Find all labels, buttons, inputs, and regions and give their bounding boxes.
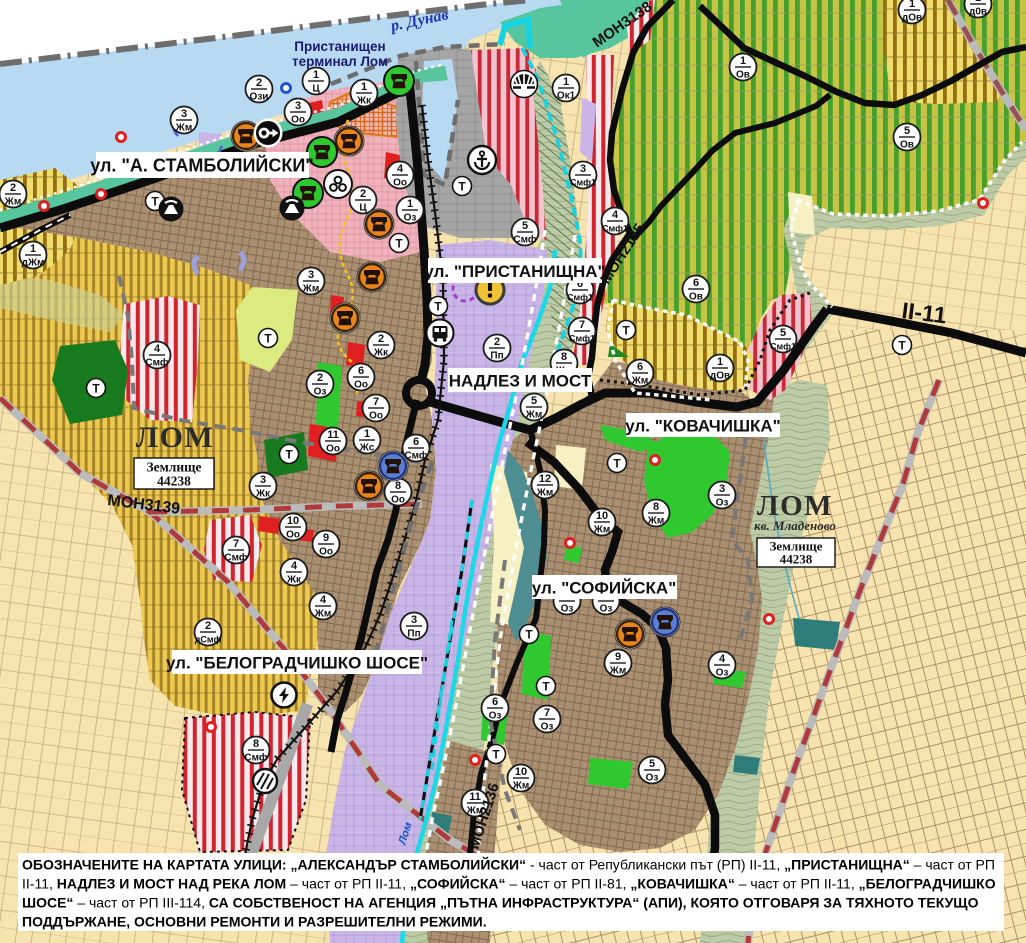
svg-text:Оо: Оо: [319, 547, 333, 558]
svg-text:44238: 44238: [780, 552, 813, 567]
svg-text:кв. Младеново: кв. Младеново: [754, 518, 836, 533]
svg-text:Смф: Смф: [224, 552, 247, 564]
svg-text:Смф1: Смф1: [567, 293, 593, 303]
svg-text:Оз: Оз: [541, 722, 554, 733]
svg-text:Пп: Пп: [490, 351, 503, 362]
svg-text:1: 1: [313, 69, 319, 81]
svg-text:1: 1: [407, 198, 413, 210]
svg-text:ул. "КОВАЧИШКА": ул. "КОВАЧИШКА": [625, 417, 781, 436]
svg-text:Жм: Жм: [525, 410, 542, 421]
svg-text:Смф: Смф: [404, 450, 427, 462]
svg-text:Оз: Оз: [716, 498, 729, 509]
svg-text:Смф: Смф: [244, 752, 267, 764]
svg-text:Смф: Смф: [145, 357, 168, 369]
svg-text:4: 4: [612, 209, 619, 221]
svg-text:Ц: Ц: [312, 84, 320, 95]
svg-text:3: 3: [719, 483, 725, 495]
svg-text:Жм: Жм: [175, 123, 192, 134]
svg-text:Оо: Оо: [354, 380, 368, 391]
svg-text:терминал Лом: терминал Лом: [292, 54, 388, 69]
svg-text:Смф1: Смф1: [569, 334, 595, 344]
svg-text:3: 3: [580, 163, 586, 175]
svg-text:10: 10: [287, 515, 299, 527]
svg-text:ЛОМ: ЛОМ: [136, 421, 215, 454]
svg-text:1: 1: [975, 0, 981, 4]
svg-text:8: 8: [253, 738, 259, 750]
svg-text:9: 9: [323, 532, 329, 544]
svg-text:Жк: Жк: [356, 96, 372, 107]
svg-text:7: 7: [233, 538, 239, 550]
svg-text:44238: 44238: [157, 474, 191, 489]
svg-text:7: 7: [373, 396, 379, 408]
svg-text:8: 8: [653, 501, 659, 513]
svg-text:Ок1: Ок1: [557, 91, 576, 102]
svg-text:2: 2: [494, 336, 500, 348]
svg-text:Т: Т: [622, 324, 630, 338]
svg-text:Смф: Смф: [513, 234, 536, 246]
svg-text:3: 3: [308, 269, 314, 281]
svg-text:Жм: Жм: [609, 666, 626, 677]
svg-text:дЖм: дЖм: [22, 258, 45, 269]
svg-text:2: 2: [317, 372, 323, 384]
svg-text:Оз: Оз: [314, 387, 327, 398]
svg-text:Ов: Ов: [689, 292, 703, 303]
svg-text:Оз: Оз: [489, 711, 502, 722]
svg-text:Оз: Оз: [404, 213, 417, 224]
svg-text:Жм: Жм: [647, 516, 664, 527]
svg-text:Т: Т: [613, 457, 621, 471]
svg-text:Жк: Жк: [373, 348, 389, 359]
svg-text:Оо: Оо: [393, 178, 407, 189]
svg-text:Смф1: Смф1: [602, 224, 628, 234]
svg-text:6: 6: [693, 277, 699, 289]
svg-text:Жм: Жм: [631, 376, 648, 387]
svg-text:Оз: Оз: [600, 604, 613, 615]
svg-text:Оо: Оо: [286, 530, 300, 541]
svg-text:ул. "А. СТАМБОЛИЙСКИ": ул. "А. СТАМБОЛИЙСКИ": [90, 155, 314, 176]
svg-text:Жк: Жк: [255, 489, 271, 500]
svg-text:Оо: Оо: [391, 495, 405, 506]
svg-text:Ов: Ов: [900, 140, 914, 151]
svg-text:5: 5: [522, 220, 528, 232]
svg-text:дОв: дОв: [902, 13, 922, 24]
svg-text:4: 4: [397, 163, 404, 175]
svg-text:8: 8: [561, 351, 567, 363]
svg-text:3: 3: [260, 474, 266, 486]
svg-text:Пп: Пп: [407, 629, 420, 640]
svg-text:6: 6: [492, 696, 498, 708]
svg-text:Смф1: Смф1: [770, 342, 796, 352]
svg-text:ПОДДЪРЖАНЕ, ОСНОВНИ РЕМОНТИ И: ПОДДЪРЖАНЕ, ОСНОВНИ РЕМОНТИ И РАЗРЕШИТЕЛ…: [22, 914, 487, 930]
svg-text:Жм: Жм: [512, 781, 529, 792]
svg-text:7: 7: [579, 319, 585, 331]
svg-text:Т: Т: [492, 748, 500, 762]
svg-text:1: 1: [909, 0, 915, 10]
svg-text:5: 5: [649, 758, 655, 770]
svg-text:Оо: Оо: [369, 411, 383, 422]
svg-text:Т: Т: [264, 332, 272, 346]
svg-text:Жс: Жс: [359, 443, 375, 454]
svg-text:Т: Т: [898, 339, 906, 353]
svg-text:Жм: Жм: [536, 488, 553, 499]
svg-text:12: 12: [539, 473, 551, 485]
svg-text:ОБОЗНАЧЕНИТЕ НА КАРТАТА УЛИЦИ:: ОБОЗНАЧЕНИТЕ НА КАРТАТА УЛИЦИ: „АЛЕКСАНД…: [22, 856, 995, 873]
svg-text:2: 2: [256, 77, 262, 89]
svg-text:Т: Т: [395, 237, 403, 251]
svg-text:10: 10: [515, 766, 527, 778]
svg-text:4: 4: [320, 594, 327, 606]
svg-text:Ози: Ози: [250, 92, 269, 103]
svg-text:11: 11: [327, 429, 339, 441]
svg-text:дОв: дОв: [710, 371, 730, 382]
svg-text:Оо: Оо: [291, 115, 305, 126]
svg-text:1: 1: [740, 55, 746, 67]
svg-text:10: 10: [596, 510, 608, 522]
svg-text:6: 6: [413, 436, 419, 448]
svg-text:11: 11: [469, 791, 481, 803]
svg-text:ул. "СОФИЙСКА": ул. "СОФИЙСКА": [532, 579, 677, 598]
svg-text:5: 5: [904, 125, 910, 137]
svg-text:8: 8: [395, 480, 401, 492]
svg-text:Ов: Ов: [736, 70, 750, 81]
svg-text:Т: Т: [525, 628, 533, 642]
svg-text:4: 4: [154, 343, 161, 355]
svg-text:НАДЛЕЗ И МОСТ: НАДЛЕЗ И МОСТ: [449, 372, 592, 391]
svg-text:1: 1: [717, 356, 723, 368]
svg-text:дСмф: дСмф: [195, 635, 222, 645]
svg-text:Т: Т: [458, 180, 466, 194]
svg-text:7: 7: [544, 707, 550, 719]
svg-text:6: 6: [358, 365, 364, 377]
svg-text:6: 6: [637, 361, 643, 373]
svg-text:3: 3: [181, 108, 187, 120]
svg-text:ул. "ПРИСТАНИЩНА": ул. "ПРИСТАНИЩНА": [424, 262, 605, 281]
svg-text:Жм: Жм: [302, 284, 319, 295]
svg-text:4: 4: [719, 653, 726, 665]
svg-text:1: 1: [30, 243, 36, 255]
svg-text:Т: Т: [92, 382, 100, 396]
svg-text:1: 1: [361, 81, 367, 93]
svg-text:3: 3: [411, 614, 417, 626]
svg-text:Смф1: Смф1: [570, 178, 596, 188]
svg-text:2: 2: [360, 188, 366, 200]
svg-text:2: 2: [378, 333, 384, 345]
svg-text:5: 5: [780, 327, 786, 339]
svg-text:5: 5: [531, 395, 537, 407]
svg-text:4: 4: [291, 560, 298, 572]
svg-text:Жм: Жм: [314, 609, 331, 620]
svg-text:д0в: д0в: [969, 7, 987, 18]
svg-text:Землище: Землище: [146, 460, 201, 475]
svg-text:Т: Т: [151, 195, 159, 209]
svg-text:ШОСЕ“ – част от РП III-114, СА: ШОСЕ“ – част от РП III-114, СА СОБСТВЕНО…: [22, 895, 979, 911]
svg-text:Оз: Оз: [716, 668, 729, 679]
svg-text:ул. "БЕЛОГРАДЧИШКО ШОСЕ": ул. "БЕЛОГРАДЧИШКО ШОСЕ": [166, 654, 428, 673]
svg-text:1: 1: [364, 428, 370, 440]
svg-text:Т: Т: [285, 448, 293, 462]
svg-text:Оо: Оо: [326, 444, 340, 455]
svg-text:Т: Т: [434, 300, 442, 314]
svg-text:Жм: Жм: [593, 525, 610, 536]
svg-text:Жм: Жм: [4, 197, 21, 208]
svg-text:Оз: Оз: [646, 773, 659, 784]
svg-text:Пристанищен: Пристанищен: [294, 39, 385, 54]
svg-text:II-11: II-11: [900, 297, 948, 328]
svg-text:2: 2: [205, 620, 211, 632]
svg-text:Оз: Оз: [561, 604, 574, 615]
svg-text:3: 3: [295, 100, 301, 112]
svg-text:2: 2: [10, 182, 16, 194]
svg-text:9: 9: [615, 651, 621, 663]
svg-text:1: 1: [563, 76, 569, 88]
svg-text:II-11, НАДЛЕЗ И МОСТ НАД РЕКА: II-11, НАДЛЕЗ И МОСТ НАД РЕКА ЛОМ – част…: [22, 875, 996, 892]
svg-text:Жк: Жк: [286, 575, 302, 586]
svg-text:Т: Т: [542, 680, 550, 694]
svg-text:Ц: Ц: [359, 203, 367, 214]
